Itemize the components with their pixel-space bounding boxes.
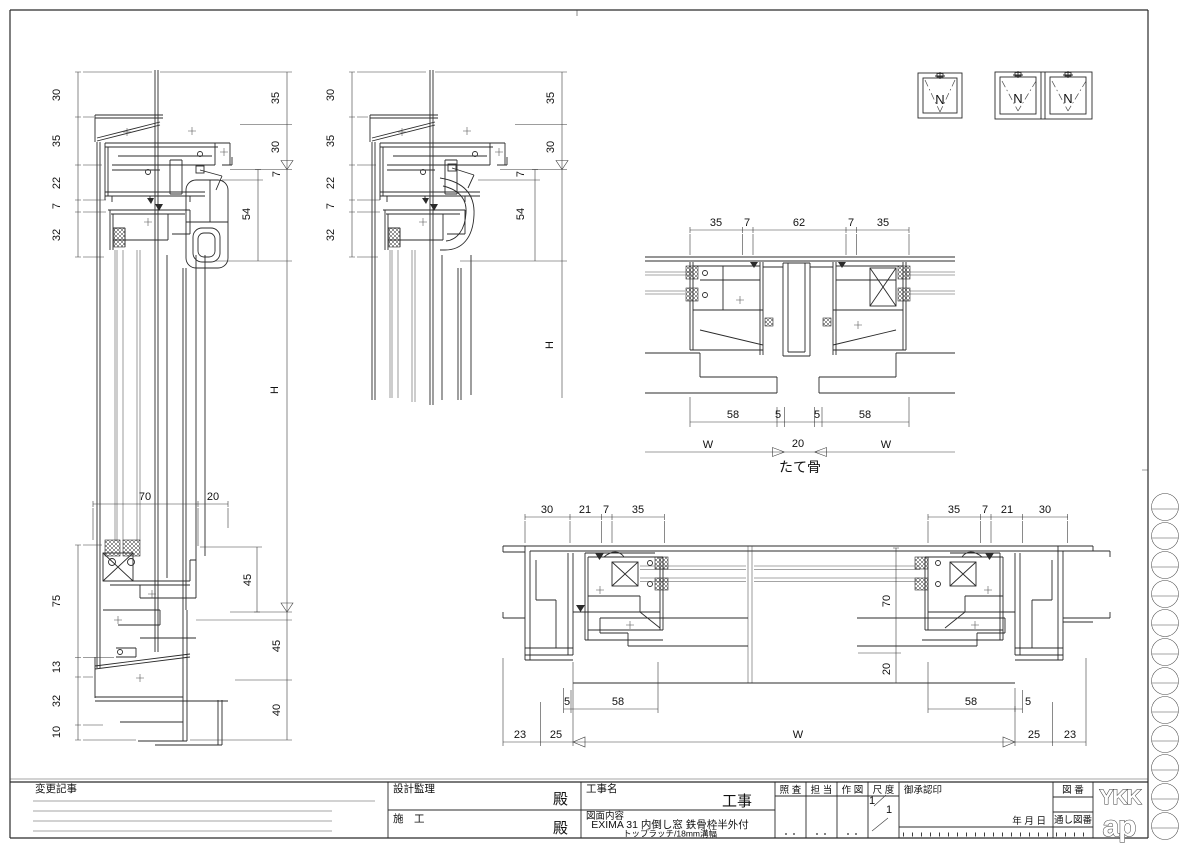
dim-label: 25: [1028, 729, 1040, 741]
logo-ap: ap: [1102, 810, 1136, 843]
dim-label: 30: [51, 89, 63, 101]
dim-label: 23: [514, 729, 526, 741]
dim-label: 10: [51, 726, 63, 738]
dim-label: H: [544, 341, 556, 349]
in-charge-label: 担 当: [811, 784, 833, 796]
single-window-symbol: N: [918, 72, 962, 118]
dim-label: H: [269, 386, 281, 394]
dim-label: 7: [603, 504, 609, 516]
scale-numerator: 1: [869, 795, 875, 807]
dim-label: 75: [51, 595, 63, 607]
dim-label: 70: [881, 595, 893, 607]
dim-label: 45: [271, 640, 283, 652]
dim-label: 7: [51, 203, 63, 209]
dono-label: 殿: [553, 820, 568, 837]
dim-label: 58: [965, 696, 977, 708]
dim-label: 7: [744, 217, 750, 229]
section-horizontal: 30 21 7 35 35 7 21 30 70 20 5 58 58 5 23…: [503, 504, 1110, 747]
dim-label: 30: [325, 89, 337, 101]
design-supervision-label: 設計監理: [393, 782, 435, 795]
dim-label: 5: [1025, 696, 1031, 708]
dim-label: 30: [1039, 504, 1051, 516]
dim-label: 20: [792, 438, 804, 450]
dono-label: 殿: [553, 791, 568, 808]
construction-label: 施 工: [393, 812, 425, 825]
dim-label: 30: [270, 141, 282, 153]
title-block: 変更記事 設計監理 殿 施 工 殿 工事名 工事 図面内容 EXIMA 31 内…: [10, 779, 1148, 843]
logo-ykk: YKK: [1099, 786, 1141, 809]
dim-label: 5: [564, 696, 570, 708]
change-notes-lines: [33, 801, 375, 831]
section-title-mullion: たて骨: [779, 459, 821, 475]
dim-label: 70: [139, 491, 151, 503]
dim-label: 21: [1001, 504, 1013, 516]
dim-label: 20: [881, 663, 893, 675]
window-type-label: N: [935, 92, 944, 107]
dim-label: W: [703, 439, 714, 451]
top-latch-handle: [186, 166, 228, 268]
dim-label: 58: [859, 409, 871, 421]
punch-holes: [1152, 494, 1179, 840]
dim-label: 35: [270, 92, 282, 104]
dim-label: 32: [51, 695, 63, 707]
mullion-bar: [750, 262, 846, 356]
cad-drawing: N N N: [0, 0, 1181, 843]
left-jamb: [503, 546, 668, 660]
dim-label: 7: [515, 171, 527, 177]
dim-label: 5: [814, 409, 820, 421]
mullion-right-sash: [833, 262, 910, 355]
scale-denominator: 1: [886, 804, 892, 816]
window-elevation-symbols: N N N: [918, 71, 1092, 119]
dim-label: 35: [325, 135, 337, 147]
drawing-number-label: 図 番: [1062, 784, 1084, 796]
dim-label: 20: [207, 491, 219, 503]
drawing-content-line2: トップラッチ/18mm溝幅: [623, 829, 717, 839]
dim-label: 7: [848, 217, 854, 229]
dim-label: 35: [545, 92, 557, 104]
change-notes-label: 変更記事: [35, 782, 77, 795]
dim-label: 54: [241, 208, 253, 220]
dim-label: 35: [877, 217, 889, 229]
right-jamb: [915, 546, 1110, 660]
window-type-label: N: [1063, 91, 1072, 106]
dim-label: 54: [515, 208, 527, 220]
dim-label: 35: [710, 217, 722, 229]
check-label: 照 査: [780, 784, 802, 796]
sheet-frame: [10, 10, 1179, 840]
dim-label: 7: [271, 171, 283, 177]
section-vertical-b: 30 35 22 7 32 35 30 7 54 H: [325, 70, 568, 405]
double-window-symbol: N N: [995, 71, 1092, 119]
window-type-label: N: [1013, 91, 1022, 106]
dim-label: 40: [271, 704, 283, 716]
dim-label: 35: [948, 504, 960, 516]
dim-label: 58: [612, 696, 624, 708]
dim-label: W: [793, 729, 804, 741]
dim-label: 22: [51, 177, 63, 189]
dim-label: 35: [51, 135, 63, 147]
dim-label: 23: [1064, 729, 1076, 741]
dim-label: 22: [325, 177, 337, 189]
dim-label: 7: [982, 504, 988, 516]
dim-label: 32: [325, 229, 337, 241]
dim-label: 5: [775, 409, 781, 421]
project-name-label: 工事名: [586, 782, 618, 795]
drawing-sheet: N N N: [0, 0, 1181, 843]
approval-label: 御承認印: [904, 784, 942, 796]
section-vertical-a: 30 35 22 7 32 35 30 7 54 H 70 20 75 13 3…: [51, 70, 293, 745]
project-suffix: 工事: [722, 793, 752, 810]
dim-label: 45: [242, 574, 254, 586]
sill-profile: [95, 540, 292, 745]
scale-label: 尺 度: [873, 784, 895, 796]
dim-label: 58: [727, 409, 739, 421]
drafting-label: 作 図: [842, 784, 864, 796]
dim-label: 25: [550, 729, 562, 741]
dim-label: 35: [632, 504, 644, 516]
dim-label: 21: [579, 504, 591, 516]
dim-label: 32: [51, 229, 63, 241]
dim-label: 30: [545, 141, 557, 153]
section-mullion: 35 7 62 7 35 58 5 5 58 W 20 W たて骨: [645, 217, 955, 475]
dim-label: 7: [325, 203, 337, 209]
dim-label: 30: [541, 504, 553, 516]
date-label: 年 月 日: [1012, 815, 1046, 827]
ykk-ap-logo: YKK ap: [1099, 786, 1141, 843]
dim-label: 62: [793, 217, 805, 229]
mullion-left-sash: [686, 262, 763, 355]
serial-number-label: 通し図番: [1054, 814, 1093, 826]
dim-label: W: [881, 439, 892, 451]
dim-label: 13: [51, 661, 63, 673]
